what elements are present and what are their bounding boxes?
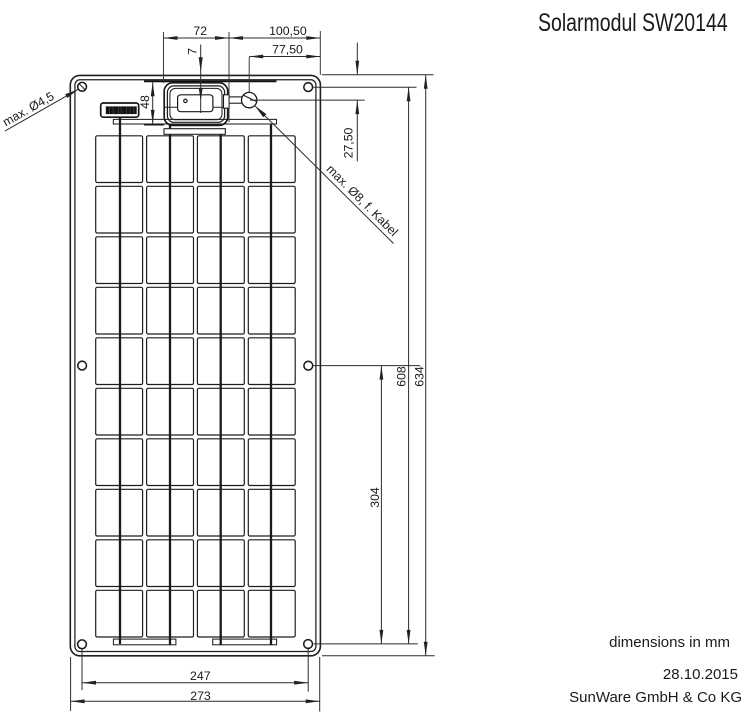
svg-text:247: 247	[190, 669, 211, 683]
svg-text:304: 304	[368, 487, 382, 508]
svg-text:max. Ø8, f. Kabel: max. Ø8, f. Kabel	[324, 162, 401, 239]
svg-text:273: 273	[190, 689, 211, 703]
svg-text:72: 72	[193, 24, 207, 38]
svg-text:77,50: 77,50	[272, 43, 303, 57]
svg-text:27,50: 27,50	[342, 127, 356, 158]
svg-text:7: 7	[186, 48, 200, 55]
svg-text:634: 634	[412, 366, 426, 387]
svg-text:48: 48	[138, 95, 152, 109]
svg-text:max. Ø4,5: max. Ø4,5	[0, 89, 56, 129]
svg-text:608: 608	[395, 366, 409, 387]
svg-text:100,50: 100,50	[269, 24, 307, 38]
